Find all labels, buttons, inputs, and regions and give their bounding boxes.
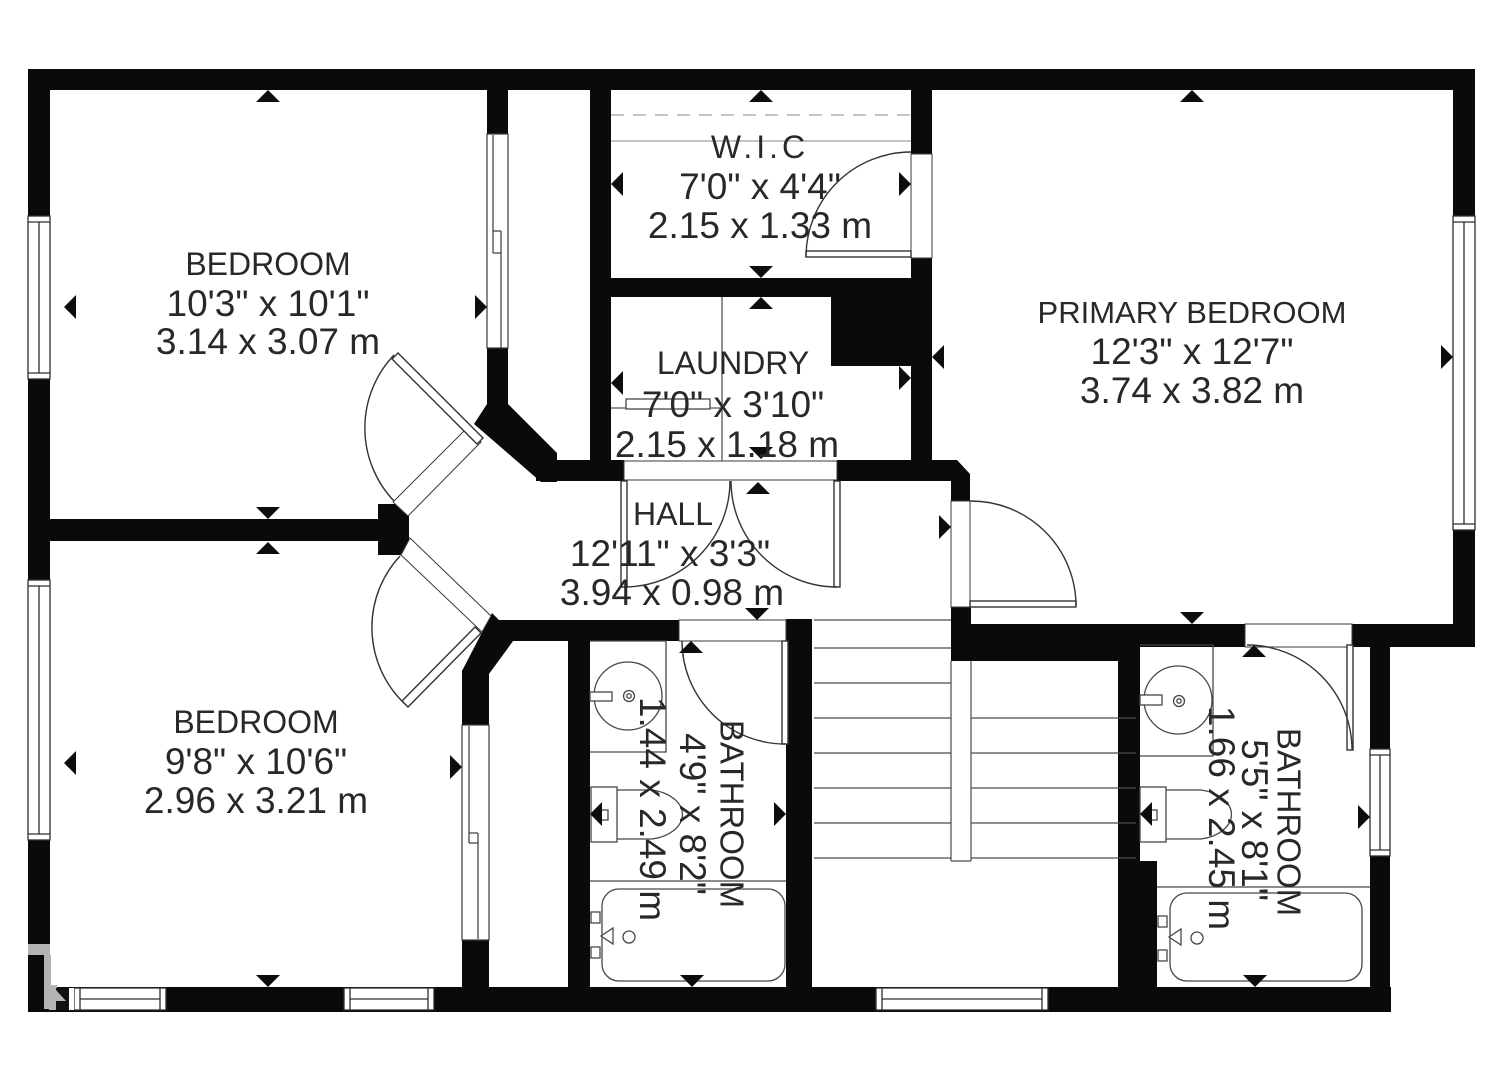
svg-text:BEDROOM: BEDROOM <box>185 246 350 282</box>
svg-text:2.15 x 1.18 m: 2.15 x 1.18 m <box>615 424 839 465</box>
svg-text:W.I.C: W.I.C <box>711 129 809 165</box>
svg-text:7'0" x 4'4": 7'0" x 4'4" <box>679 166 841 207</box>
svg-text:2.15 x 1.33 m: 2.15 x 1.33 m <box>648 205 872 246</box>
svg-text:BEDROOM: BEDROOM <box>173 704 338 740</box>
svg-text:HALL: HALL <box>633 496 713 532</box>
svg-text:3.74 x 3.82 m: 3.74 x 3.82 m <box>1080 370 1304 411</box>
svg-text:10'3" x 10'1": 10'3" x 10'1" <box>167 283 370 324</box>
svg-text:3.14 x 3.07 m: 3.14 x 3.07 m <box>156 321 380 362</box>
svg-text:9'8" x 10'6": 9'8" x 10'6" <box>165 741 347 782</box>
svg-text:PRIMARY BEDROOM: PRIMARY BEDROOM <box>1038 295 1347 330</box>
svg-text:BATHROOM: BATHROOM <box>713 720 750 908</box>
svg-text:7'0" x 3'10": 7'0" x 3'10" <box>642 384 824 425</box>
svg-text:4'9" x 8'2": 4'9" x 8'2" <box>672 733 713 895</box>
svg-text:2.96 x 3.21 m: 2.96 x 3.21 m <box>144 780 368 821</box>
svg-text:1.66 x 2.45 m: 1.66 x 2.45 m <box>1201 706 1242 930</box>
svg-text:12'11" x 3'3": 12'11" x 3'3" <box>570 533 770 574</box>
svg-text:3.94 x 0.98 m: 3.94 x 0.98 m <box>560 572 784 613</box>
svg-text:12'3" x 12'7": 12'3" x 12'7" <box>1091 331 1294 372</box>
svg-text:LAUNDRY: LAUNDRY <box>657 345 809 381</box>
svg-text:1.44 x 2.49 m: 1.44 x 2.49 m <box>632 697 673 921</box>
